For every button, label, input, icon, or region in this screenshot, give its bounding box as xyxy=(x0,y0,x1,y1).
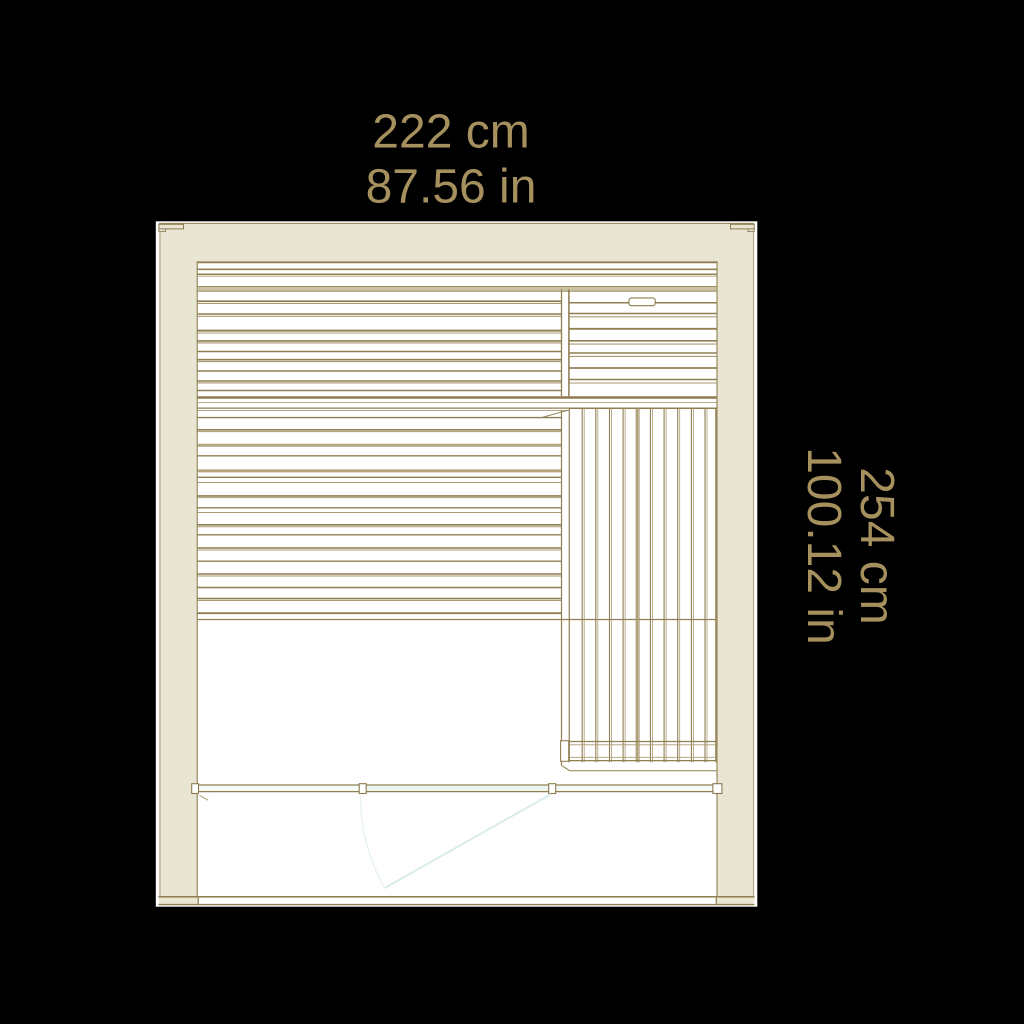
svg-text:254 cm: 254 cm xyxy=(850,467,903,624)
svg-text:87.56 in: 87.56 in xyxy=(366,161,537,214)
svg-text:222 cm: 222 cm xyxy=(372,106,529,159)
svg-text:100.12 in: 100.12 in xyxy=(797,447,850,645)
